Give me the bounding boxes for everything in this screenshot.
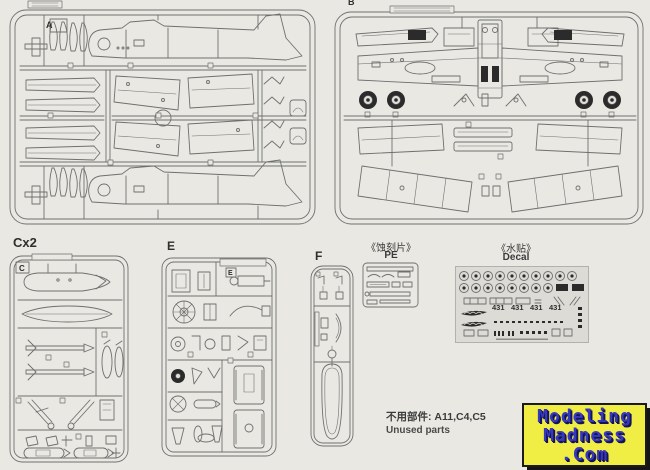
decal-number: 431	[530, 303, 543, 312]
unused-parts-note: 不用部件: A11,C4,C5 Unused parts	[386, 410, 486, 438]
sprue-c-art	[8, 252, 132, 466]
pe-fret-art	[362, 262, 420, 310]
pe-title-en: PE	[360, 250, 422, 261]
unused-parts-cn: 不用部件: A11,C4,C5	[386, 410, 486, 424]
sprue-a-art	[8, 0, 318, 228]
sprue-e-corner-label: E	[228, 270, 233, 277]
sprue-b-art	[332, 0, 650, 228]
sprue-e-art	[158, 252, 282, 462]
logo-line-1: Modeling	[524, 407, 645, 426]
sprue-c-corner-label: C	[19, 264, 25, 273]
sprue-b-label: B	[348, 0, 355, 7]
decal-number: 431	[492, 303, 505, 312]
modelingmadness-logo: Modeling Madness .Com	[522, 403, 647, 467]
sprue-e-label: E	[167, 239, 175, 253]
decal-number: 431	[549, 303, 562, 312]
sprue-f-art	[308, 258, 358, 452]
decal-sheet: 431 431 431 431	[455, 266, 589, 343]
sprue-c-label: Cx2	[13, 235, 37, 250]
sprue-f-label: F	[315, 249, 322, 263]
instruction-sheet-page: A	[0, 0, 650, 470]
unused-parts-en: Unused parts	[386, 424, 486, 438]
decal-number: 431	[511, 303, 524, 312]
logo-line-2: Madness	[524, 426, 645, 445]
logo-line-3: .Com	[524, 445, 645, 464]
sprue-a-label: A	[46, 20, 53, 30]
decal-title-en: Decal	[486, 252, 546, 263]
